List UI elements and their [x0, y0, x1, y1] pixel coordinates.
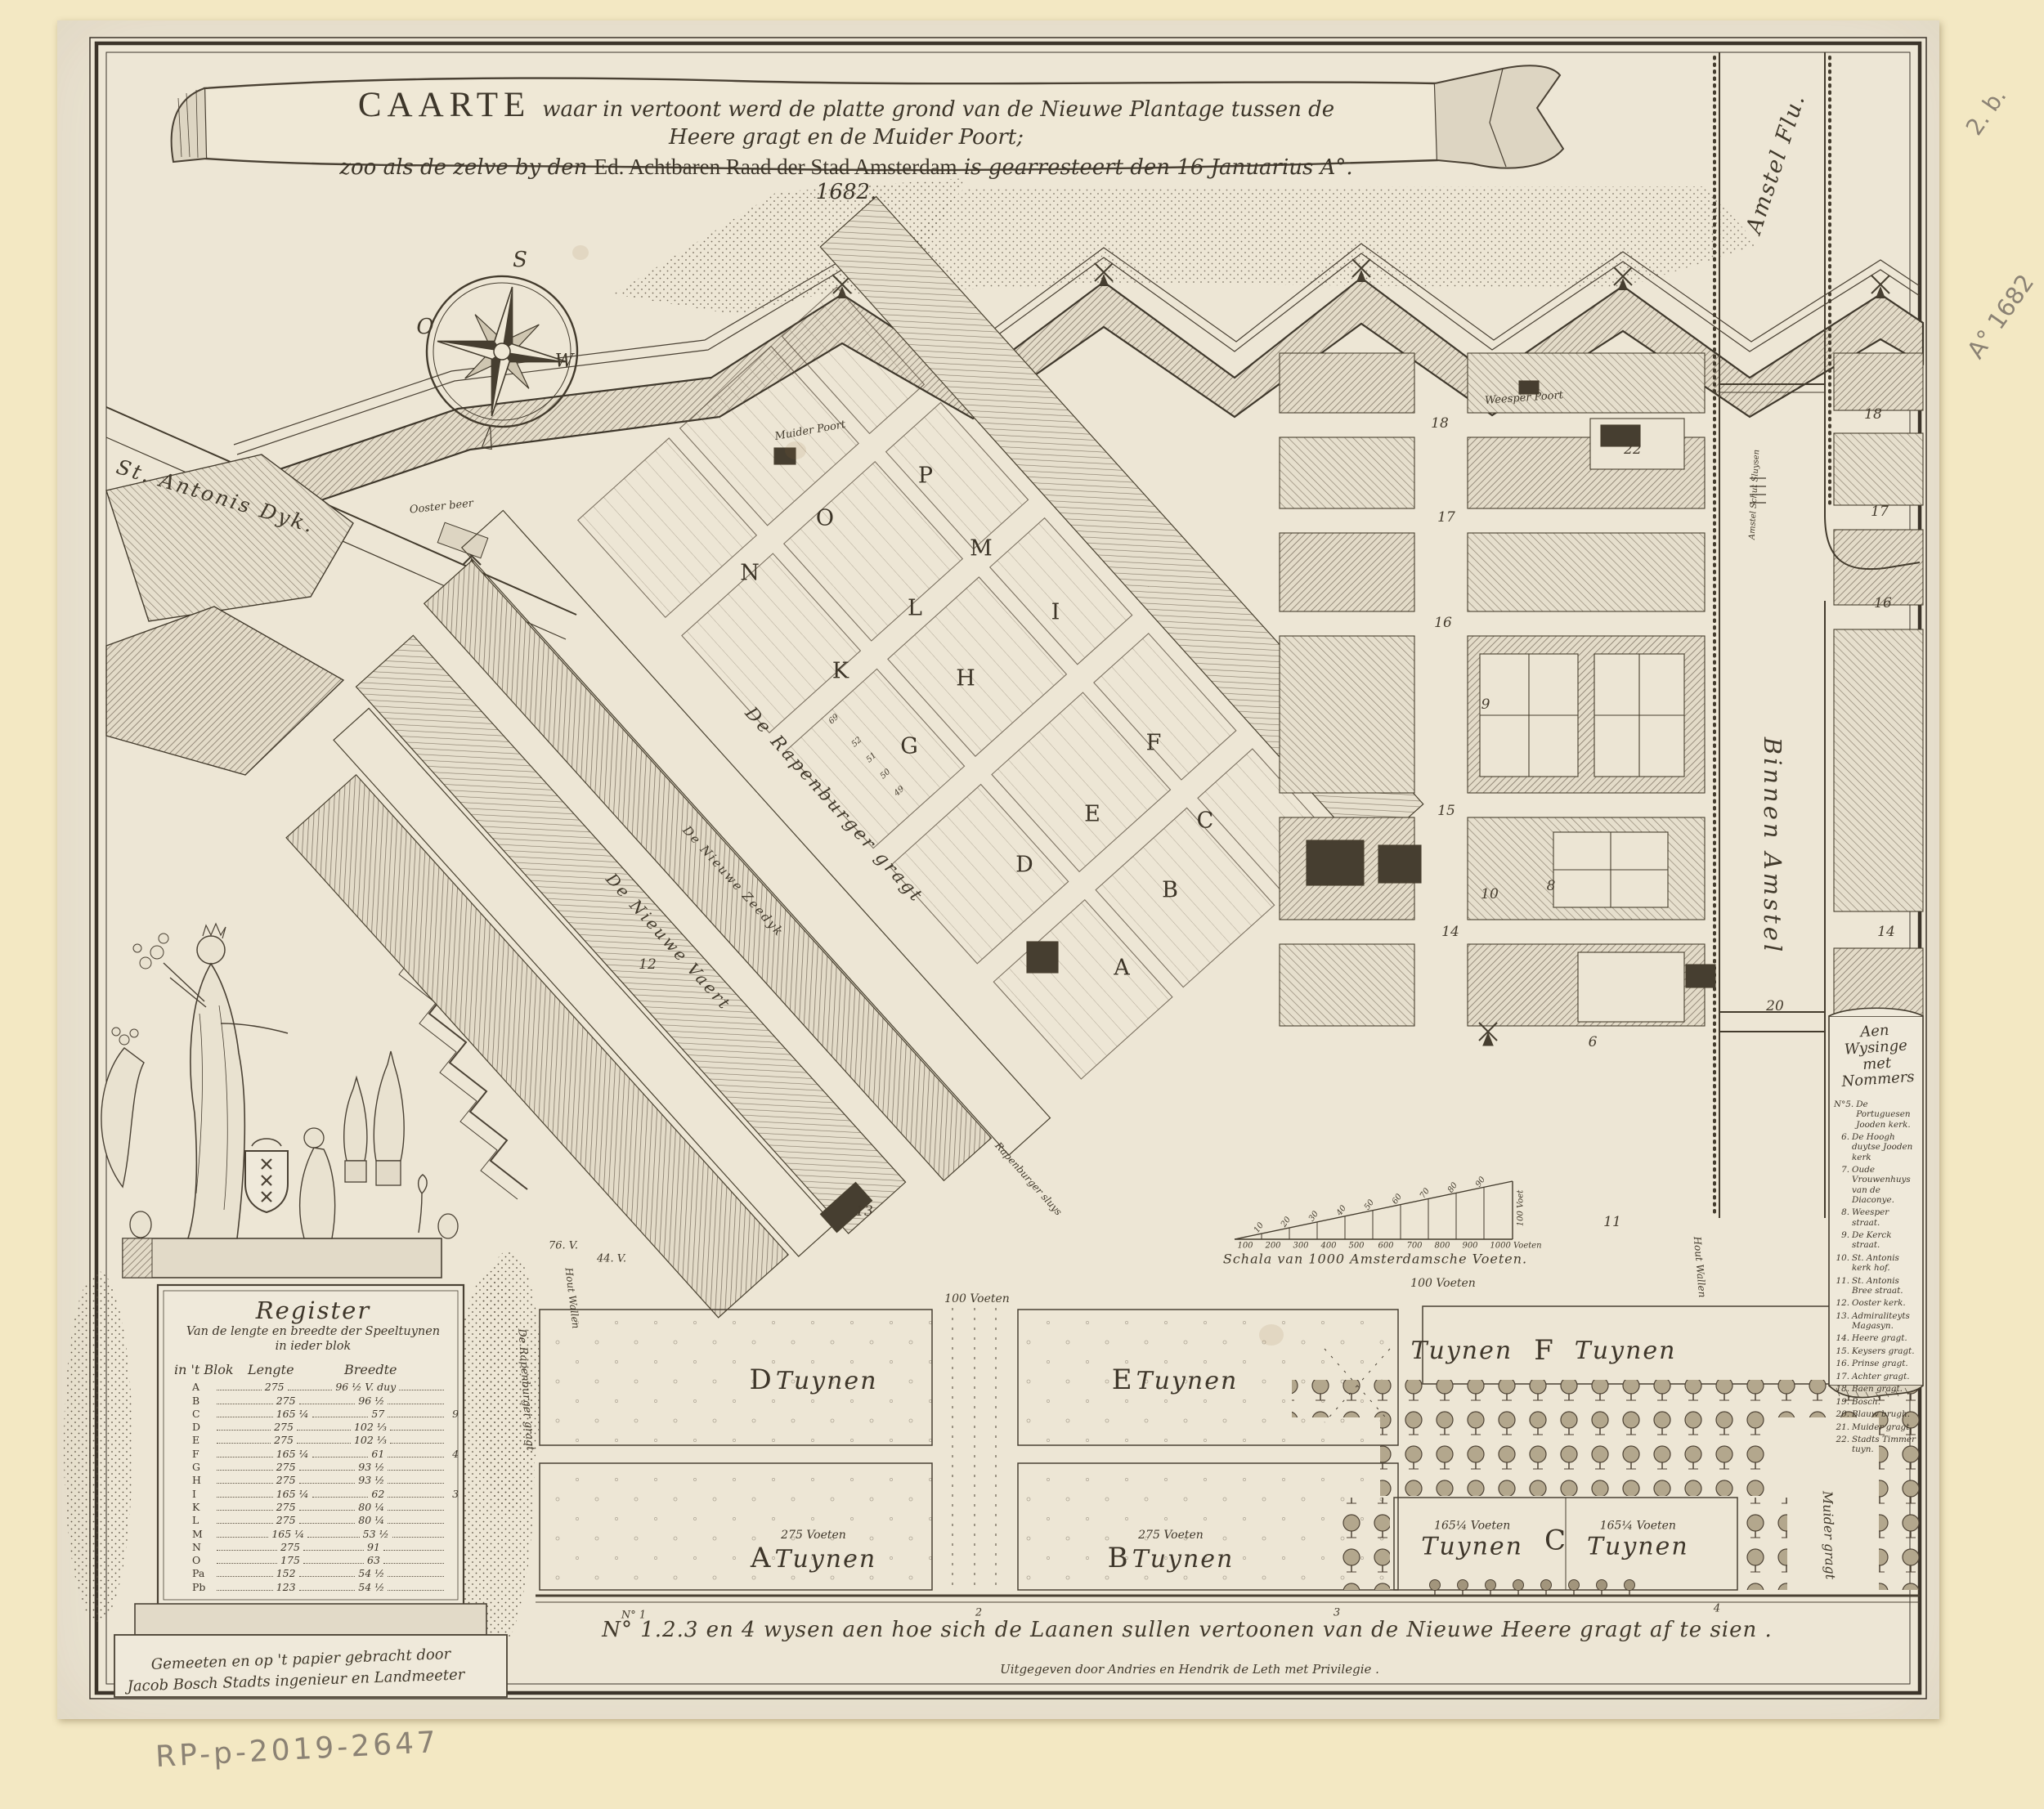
legend-item: 9. De Kerck straat. — [1834, 1230, 1919, 1251]
street-number-6: 6 — [1589, 1034, 1598, 1050]
register-breadth-cell: 93 ½ — [358, 1474, 384, 1486]
garden-f-left-word: Tuynen — [1411, 1337, 1513, 1365]
garden-dim-100b: 100 Voeten — [1410, 1277, 1476, 1290]
register-block-cell: C — [192, 1408, 213, 1420]
register-breadth-cell: 93 ½ — [358, 1461, 384, 1473]
legend-item: 22. Stadts Timmer tuyn. — [1834, 1435, 1919, 1455]
legend-item-number: 10. — [1834, 1253, 1849, 1274]
register-row: M 165 ¼ 53 ½ — [168, 1528, 459, 1541]
garden-c-label: 165¼ Voeten Tuynen C 165¼ Voeten Tuynen — [1421, 1520, 1688, 1561]
register-length-cell: 165 ¼ — [276, 1408, 309, 1420]
register-breadth-cell: 63 — [367, 1554, 380, 1566]
street-number-18: 18 — [1431, 415, 1449, 432]
register-breadth-cell: 91 — [367, 1541, 380, 1553]
garden-e-label: E Tuynen — [1112, 1363, 1239, 1396]
street-number-12: 12 — [639, 956, 657, 973]
scale-tick: 200 — [1265, 1242, 1280, 1251]
legend-item: 12. Ooster kerk. — [1834, 1298, 1919, 1308]
block-letter-p: P — [918, 463, 933, 489]
legend-item-number: 11. — [1834, 1276, 1849, 1296]
register-length-cell: 275 — [276, 1514, 296, 1526]
legend-item: 15. Keysers gragt. — [1834, 1346, 1919, 1356]
register-header: in 't Blok Lengte Breedte — [174, 1362, 459, 1377]
garden-d-letter: D — [749, 1363, 771, 1396]
legend-item: 20. Blauw brugh. — [1834, 1409, 1919, 1419]
legend-item-number: 7. — [1834, 1165, 1849, 1205]
legend-title-2: met Nommers — [1834, 1053, 1921, 1091]
legend-item-text: De Kerck straat. — [1852, 1230, 1919, 1251]
legend-item-number: 13. — [1834, 1311, 1849, 1332]
register-length-cell: 275 — [265, 1381, 285, 1393]
street-number-10: 10 — [1481, 886, 1499, 902]
register-breadth-cell: 80 ¼ — [358, 1514, 384, 1526]
legend-item-text: St. Antonis kerk hof. — [1852, 1253, 1919, 1274]
garden-f-letter: F — [1534, 1334, 1553, 1367]
register-block-cell: Pb — [192, 1581, 213, 1593]
block-letter-h: H — [956, 666, 975, 692]
label-binnen-amstel: Binnen Amstel — [1759, 737, 1786, 955]
block-letter-m: M — [970, 536, 993, 562]
register-breadth-cell: 80 ¼ — [358, 1501, 384, 1513]
legend-item-number: 12. — [1834, 1298, 1849, 1308]
legend-item-text: Weesper straat. — [1852, 1207, 1919, 1228]
garden-e-letter: E — [1112, 1363, 1132, 1396]
register-extra-cell: 4 — [447, 1448, 459, 1460]
register-extra-cell: 9 — [447, 1408, 459, 1420]
register-block-cell: I — [192, 1488, 213, 1500]
garden-dim-100a: 100 Voeten — [944, 1292, 1010, 1305]
garden-dim-44: 44. V. — [597, 1253, 626, 1265]
legend-item: 11. St. Antonis Bree straat. — [1834, 1276, 1919, 1296]
footer-caption: N° 1.2.3 en 4 wysen aen hoe sich de Laan… — [602, 1618, 1773, 1642]
legend-item-number: 6. — [1834, 1132, 1849, 1162]
register-row: E 275 102 ⅓ — [168, 1434, 459, 1447]
legend-item-text: Achter gragt. — [1852, 1372, 1919, 1381]
legend-item: 21. Muider gragt. — [1834, 1422, 1919, 1432]
register-row: O 175 63 — [168, 1554, 459, 1567]
street-number-9: 9 — [1481, 696, 1490, 713]
garden-e-word: Tuynen — [1136, 1367, 1239, 1395]
foxing-spot — [572, 245, 589, 260]
legend-item-number: 20. — [1834, 1409, 1849, 1419]
street-number-14: 14 — [1441, 924, 1459, 940]
garden-a-label: 275 Voeten A Tuynen — [751, 1529, 876, 1574]
label-muider-gragt: Muider gragt — [1820, 1491, 1839, 1580]
legend-item-number: 18. — [1834, 1384, 1849, 1394]
block-letter-k: K — [832, 659, 849, 684]
antique-map-page: { "title": { "lead": "CAARTE", "line1": … — [0, 0, 2044, 1809]
garden-c-right-word: Tuynen — [1587, 1533, 1689, 1561]
register-breadth-cell: 54 ½ — [358, 1567, 384, 1579]
register-length-cell: 275 — [276, 1474, 296, 1486]
garden-b-label: 275 Voeten B Tuynen — [1108, 1529, 1235, 1574]
register-subtitle1: Van de lengte en breedte der Speeltuynen — [168, 1324, 459, 1339]
compass-west-label: W — [555, 352, 574, 372]
street-number-14: 14 — [1877, 924, 1895, 940]
scale-right-label: 100 Voet — [1517, 1190, 1526, 1227]
register-subtitle2: in ieder blok — [168, 1339, 459, 1354]
garden-c-dim-right: 165¼ Voeten — [1587, 1520, 1689, 1533]
register-length-cell: 123 — [276, 1581, 296, 1593]
register-breadth-cell: 102 ⅓ — [354, 1421, 387, 1433]
legend-item-number: 19. — [1834, 1397, 1849, 1407]
register-breadth-cell: 96 ½ V. duy — [335, 1381, 396, 1393]
street-number-16: 16 — [1434, 615, 1452, 631]
register-col-length: Lengte — [248, 1362, 344, 1377]
register-length-cell: 275 — [276, 1501, 296, 1513]
legend-panel: Aen Wysinge met Nommers N°5. De Portugue… — [1834, 1023, 1919, 1457]
legend-item: 8. Weesper straat. — [1834, 1207, 1919, 1228]
register-row: C 165 ¼ 57 9 — [168, 1408, 459, 1421]
legend-item: 16. Prinse gragt. — [1834, 1359, 1919, 1368]
block-letter-o: O — [816, 506, 834, 531]
block-letter-l: L — [908, 596, 922, 621]
legend-item-text: Oude Vrouwenhuys van de Diaconye. — [1852, 1165, 1919, 1205]
legend-item-number: 17. — [1834, 1372, 1849, 1381]
legend-item-text: Prinse gragt. — [1852, 1359, 1919, 1368]
register-row: N 275 91 — [168, 1541, 459, 1554]
lane-mark-4: 4 — [1714, 1603, 1720, 1615]
street-number-8: 8 — [1547, 878, 1556, 894]
legend-item-text: Keysers gragt. — [1852, 1346, 1919, 1356]
scale-tick: 300 — [1293, 1242, 1308, 1251]
foxing-spot — [1259, 1324, 1284, 1346]
register-block-cell: M — [192, 1528, 213, 1540]
scale-tick: 100 — [1237, 1242, 1253, 1251]
street-number-18: 18 — [1864, 406, 1882, 423]
legend-item-text: De Portuguesen Jooden kerk. — [1856, 1099, 1919, 1130]
legend-items: N°5. De Portuguesen Jooden kerk. 6. De H… — [1834, 1099, 1919, 1454]
register-length-cell: 175 — [280, 1554, 300, 1566]
legend-item: 6. De Hoogh duytse Jooden kerk — [1834, 1132, 1919, 1162]
block-letter-g: G — [900, 734, 918, 759]
register-breadth-cell: 53 ½ — [363, 1528, 389, 1540]
register-row: Pb 123 54 ½ — [168, 1581, 459, 1594]
garden-dim-76: 76. V. — [549, 1240, 578, 1252]
legend-item-text: De Hoogh duytse Jooden kerk — [1852, 1132, 1919, 1162]
compass-east-label: O — [416, 315, 433, 339]
register-breadth-cell: 102 ⅓ — [354, 1434, 387, 1446]
street-number-16: 16 — [1874, 595, 1892, 611]
register-col-block: in 't Blok — [174, 1362, 248, 1377]
register-block-cell: F — [192, 1448, 213, 1460]
register-extra-cell: 3 — [447, 1488, 459, 1500]
street-number-22: 22 — [1624, 441, 1642, 458]
legend-item: 13. Admiraliteyts Magasyn. — [1834, 1311, 1919, 1332]
register-block-cell: E — [192, 1434, 213, 1446]
register-breadth-cell: 57 — [371, 1408, 384, 1420]
register-rows: A 275 96 ½ V. duy B 275 96 ½ C 165 ¼ 57 … — [168, 1381, 459, 1594]
legend-item-number: N°5. — [1834, 1099, 1853, 1130]
street-number-17: 17 — [1871, 504, 1889, 520]
compass-south-label: S — [513, 248, 527, 272]
street-number-15: 15 — [1437, 803, 1455, 819]
register-length-cell: 165 ¼ — [276, 1488, 309, 1500]
scale-tick: 800 — [1434, 1242, 1450, 1251]
legend-item-text: Bosch. — [1852, 1397, 1919, 1407]
scale-tick: 400 — [1320, 1242, 1336, 1251]
scale-tick: 900 — [1462, 1242, 1477, 1251]
garden-b-word: Tuynen — [1132, 1545, 1235, 1574]
register-length-cell: 275 — [280, 1541, 300, 1553]
garden-a-dim: 275 Voeten — [751, 1529, 876, 1542]
garden-f-label: Tuynen F Tuynen — [1411, 1334, 1677, 1367]
garden-a-letter: A — [751, 1542, 771, 1574]
legend-item: 14. Heere gragt. — [1834, 1333, 1919, 1343]
title-line2b: Ed. Achtbaren Raad der Stad Amsterdam — [594, 154, 957, 179]
legend-item-text: Admiraliteyts Magasyn. — [1852, 1311, 1919, 1332]
legend-item: 7. Oude Vrouwenhuys van de Diaconye. — [1834, 1165, 1919, 1205]
register-length-cell: 275 — [274, 1434, 294, 1446]
register-block-cell: K — [192, 1501, 213, 1513]
legend-item-number: 16. — [1834, 1359, 1849, 1368]
foxing-spot — [785, 441, 806, 459]
register-breadth-cell: 62 — [371, 1488, 384, 1500]
garden-b-letter: B — [1108, 1542, 1128, 1574]
legend-item-text: Ooster kerk. — [1852, 1298, 1919, 1308]
legend-item: 10. St. Antonis kerk hof. — [1834, 1253, 1919, 1274]
register-breadth-cell: 61 — [371, 1448, 384, 1460]
block-letter-d: D — [1015, 853, 1033, 878]
title-line1-text: waar in vertoont werd de platte grond va… — [542, 97, 1334, 150]
legend-item-text: Heere gragt. — [1852, 1333, 1919, 1343]
register-col-breadth: Breedte — [344, 1362, 459, 1377]
register-breadth-cell: 54 ½ — [358, 1581, 384, 1593]
map-title: CAARTEwaar in vertoont werd de platte gr… — [323, 85, 1369, 204]
register-block-cell: D — [192, 1421, 213, 1433]
garden-c-left-word: Tuynen — [1421, 1533, 1523, 1561]
block-letter-b: B — [1162, 878, 1178, 903]
legend-item-text: Muider gragt. — [1852, 1422, 1919, 1432]
legend-item-text: St. Antonis Bree straat. — [1852, 1276, 1919, 1296]
legend-item-number: 14. — [1834, 1333, 1849, 1343]
garden-c-letter: C — [1544, 1524, 1566, 1556]
register-row: B 275 96 ½ — [168, 1395, 459, 1408]
register-row: L 275 80 ¼ — [168, 1514, 459, 1527]
register-row: A 275 96 ½ V. duy — [168, 1381, 459, 1394]
register-block-cell: G — [192, 1461, 213, 1473]
register-block-cell: H — [192, 1474, 213, 1486]
register-length-cell: 165 ¼ — [271, 1528, 304, 1540]
street-number-13: 13 — [855, 1203, 873, 1220]
register-length-cell: 275 — [276, 1461, 296, 1473]
register-block-cell: A — [192, 1381, 213, 1393]
legend-item: 19. Bosch. — [1834, 1397, 1919, 1407]
register-row: K 275 80 ¼ — [168, 1501, 459, 1514]
register-row: F 165 ¼ 61 4 — [168, 1448, 459, 1461]
register-length-cell: 275 — [276, 1395, 296, 1407]
legend-item-number: 22. — [1834, 1435, 1849, 1455]
register-block-cell: Pa — [192, 1567, 213, 1579]
title-line2a: zoo als de zelve by den — [339, 155, 587, 180]
legend-item-text: Baen gragt. — [1852, 1384, 1919, 1394]
register-row: Pa 152 54 ½ — [168, 1567, 459, 1580]
register-length-cell: 275 — [274, 1421, 294, 1433]
street-number-20: 20 — [1766, 998, 1784, 1014]
legend-item-number: 21. — [1834, 1422, 1849, 1432]
street-number-11: 11 — [1603, 1214, 1621, 1230]
register-row: G 275 93 ½ — [168, 1461, 459, 1474]
block-letter-i: I — [1051, 600, 1060, 625]
garden-b-dim: 275 Voeten — [1108, 1529, 1235, 1542]
register-block-cell: N — [192, 1541, 213, 1553]
legend-item-text: Blauw brugh. — [1852, 1409, 1919, 1419]
register-block-cell: L — [192, 1514, 213, 1526]
register-length-cell: 165 ¼ — [276, 1448, 309, 1460]
garden-d-word: Tuynen — [776, 1367, 878, 1395]
register-row: D 275 102 ⅓ — [168, 1421, 459, 1434]
legend-item: N°5. De Portuguesen Jooden kerk. — [1834, 1099, 1919, 1130]
title-lead: CAARTE — [358, 86, 531, 124]
block-letter-e: E — [1084, 802, 1100, 827]
register-title: Register — [168, 1296, 459, 1324]
garden-f-right-word: Tuynen — [1575, 1337, 1677, 1365]
publisher-line: Uitgegeven door Andries en Hendrik de Le… — [1000, 1662, 1379, 1677]
scale-tick: 600 — [1378, 1242, 1393, 1251]
register-length-cell: 152 — [276, 1567, 296, 1579]
legend-item-text: Stadts Timmer tuyn. — [1852, 1435, 1919, 1455]
block-letter-c: C — [1197, 808, 1214, 834]
register-row: H 275 93 ½ — [168, 1474, 459, 1487]
block-letter-n: N — [740, 561, 760, 586]
legend-item-number: 9. — [1834, 1230, 1849, 1251]
street-number-17: 17 — [1437, 509, 1455, 526]
scale-tick: 500 — [1348, 1242, 1364, 1251]
legend-item: 18. Baen gragt. — [1834, 1384, 1919, 1394]
legend-item-number: 15. — [1834, 1346, 1849, 1356]
block-letter-f: F — [1146, 731, 1162, 756]
scale-tick: 1000 Voeten — [1490, 1242, 1541, 1251]
register-breadth-cell: 96 ½ — [358, 1395, 384, 1407]
register-block-cell: O — [192, 1554, 213, 1566]
garden-d-label: D Tuynen — [749, 1363, 877, 1396]
garden-c-dim-left: 165¼ Voeten — [1421, 1520, 1523, 1533]
legend-item: 17. Achter gragt. — [1834, 1372, 1919, 1381]
garden-a-word: Tuynen — [774, 1545, 876, 1574]
register-block-cell: B — [192, 1395, 213, 1407]
register-row: I 165 ¼ 62 3 — [168, 1488, 459, 1501]
legend-item-number: 8. — [1834, 1207, 1849, 1228]
register-table: Register Van de lengte en breedte der Sp… — [168, 1296, 459, 1594]
scale-tick: 700 — [1406, 1242, 1422, 1251]
block-letter-a: A — [1114, 956, 1130, 981]
scale-caption: Schala van 1000 Amsterdamsche Voeten. — [1223, 1252, 1527, 1267]
legend-title-1: Aen Wysinge — [1831, 1020, 1919, 1059]
